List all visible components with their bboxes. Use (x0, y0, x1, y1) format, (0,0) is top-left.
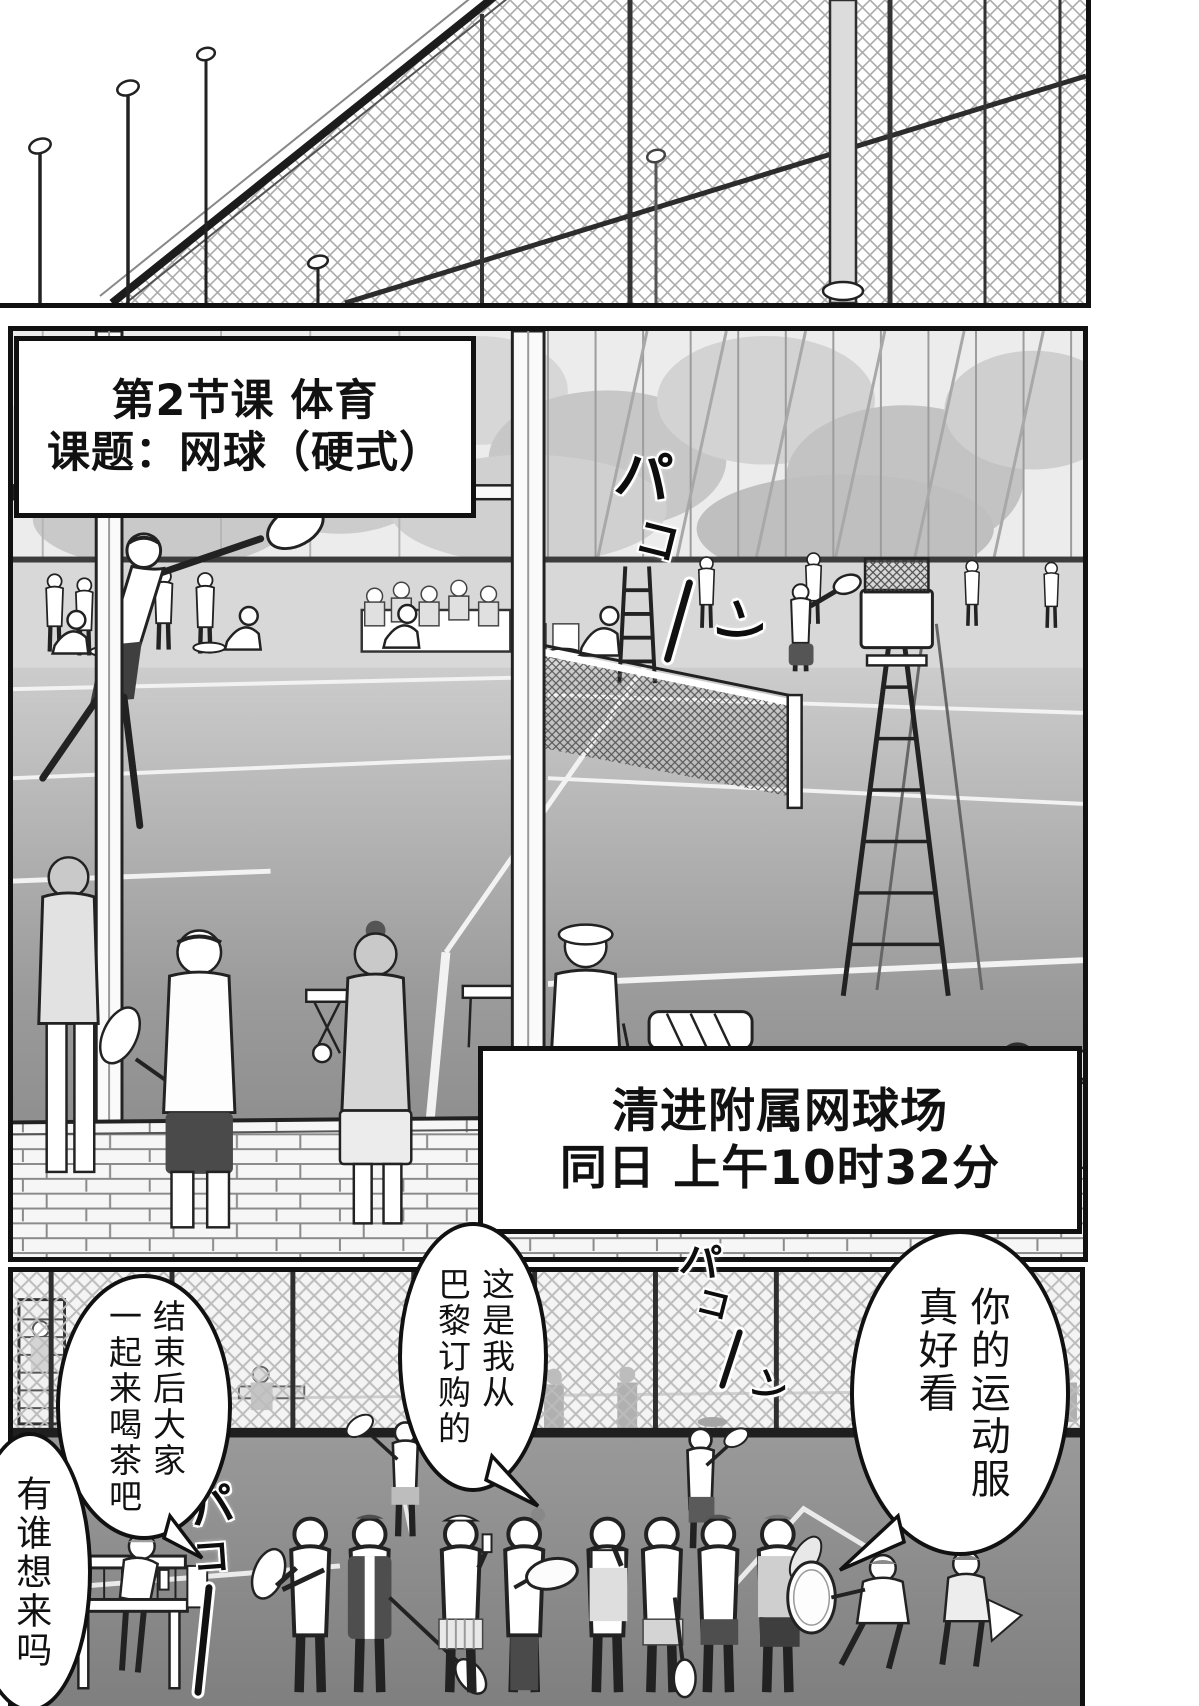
panel-top-fence (0, 0, 1091, 308)
bubble-compliment-tail (834, 1512, 914, 1576)
bubble-compliment-col1: 你的运动服 (963, 1286, 1010, 1501)
bubble-tea-col1: 结束后大家 (147, 1299, 186, 1515)
bubble-paris-col1: 这是我从 (476, 1267, 515, 1447)
manga-page: 第2节课 体育 课题：网球（硬式） 清进附属网球场 同日 上午10时32分 你的… (0, 0, 1199, 1706)
bubble-paris-tail (482, 1452, 546, 1512)
chain-link-mesh (100, 0, 1086, 303)
caption-class-line1: 第2节课 体育 (112, 375, 379, 427)
bubble-paris-col2: 巴黎订购的 (432, 1267, 471, 1447)
ball-cart (649, 1012, 752, 1050)
speech-bubble-compliment: 你的运动服 真好看 (850, 1230, 1070, 1556)
sfx-pakon-court-ko: コ (692, 1284, 733, 1325)
sfx-pakon-mid-pa: パ (611, 446, 674, 509)
bubble-tea-col2: 一起来喝茶吧 (103, 1299, 142, 1515)
bubble-tea-tail (160, 1512, 208, 1564)
sfx-pakon-mid: パ コ ン (615, 450, 775, 690)
bubble-invite-col1: 有谁想来吗 (9, 1475, 51, 1670)
sfx-pakon-mid-ko: コ (630, 515, 683, 568)
sfx-pakon-court-dash (719, 1329, 744, 1390)
caption-location-time: 清进附属网球场 同日 上午10时32分 (478, 1046, 1082, 1234)
sfx-pakon-mid-dash (663, 579, 693, 664)
fence-scene-art (0, 0, 1086, 303)
bubble-compliment-col2: 真好看 (910, 1286, 957, 1501)
sfx-pakon-court: パ コ ン (680, 1242, 790, 1422)
sfx-pakon-court-n: ン (744, 1364, 793, 1413)
caption-location-line1: 清进附属网球场 (612, 1083, 948, 1140)
caption-class-line2: 课题：网球（硬式） (47, 427, 443, 479)
caption-location-line2: 同日 上午10时32分 (560, 1140, 1000, 1197)
sfx-pakon-mid-n: ン (706, 591, 774, 659)
sfx-pakon-court-pa: パ (677, 1239, 723, 1285)
sfx-pako-bench-dash (194, 1584, 213, 1696)
caption-class-info: 第2节课 体育 课题：网球（硬式） (14, 336, 476, 518)
